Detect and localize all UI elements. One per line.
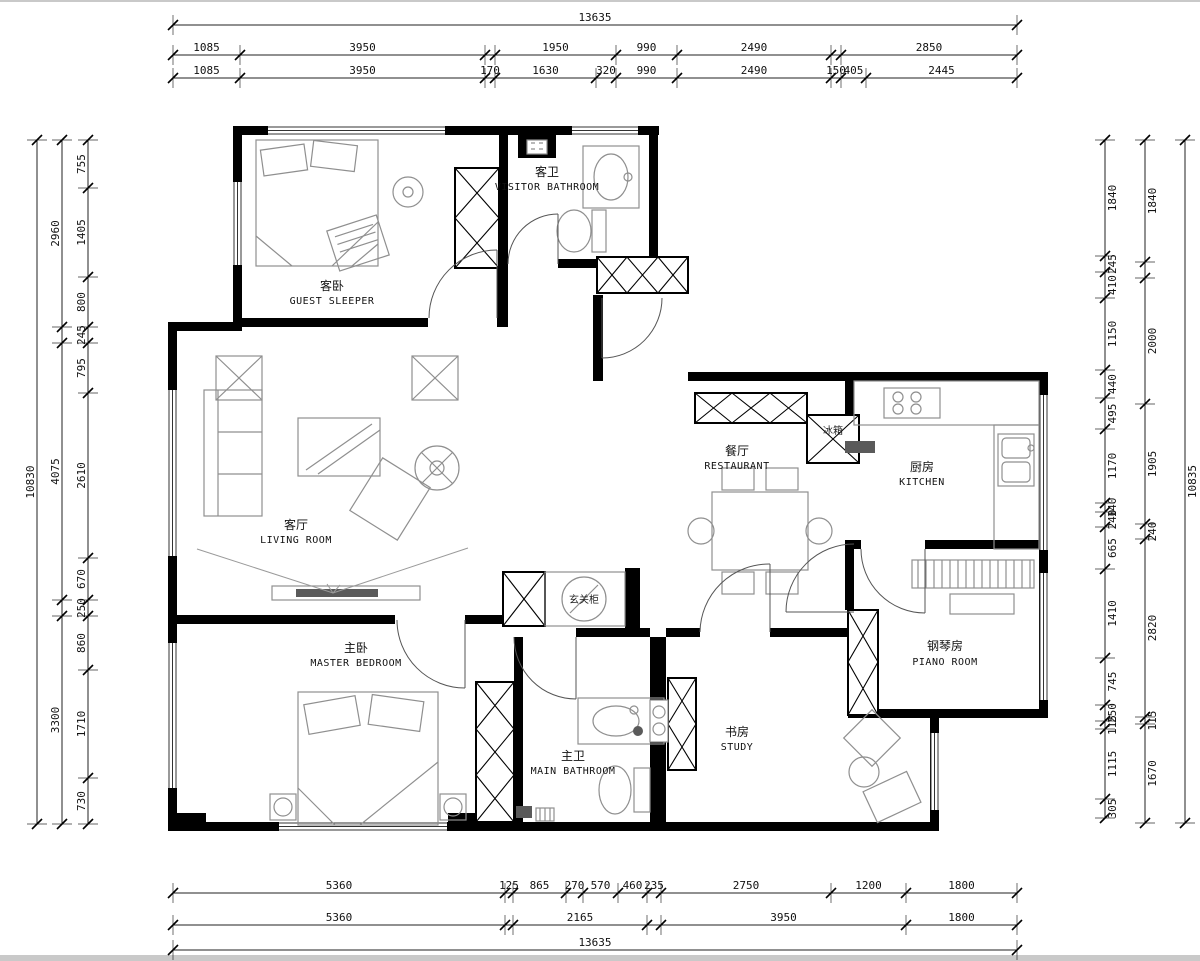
dim-label: 2610 [75, 462, 88, 489]
kitchen-entry-block [845, 441, 875, 453]
dim-label: 1085 [193, 41, 220, 54]
master-closet-icon [476, 682, 514, 822]
room-label-master-bedroom-en: MASTER BEDROOM [310, 658, 401, 669]
dim-bottom-inner: 5360125865270570460235275012001800 [168, 879, 1022, 903]
dim-label: 320 [596, 64, 616, 77]
room-label-living-room-zh: 客厅 [284, 517, 308, 532]
dim-label: 2850 [916, 41, 943, 54]
window-piano-right [1040, 573, 1048, 700]
room-label-study-en: STUDY [721, 742, 754, 753]
dim-label: 665 [1106, 538, 1119, 558]
room-label-main-bathroom-en: MAIN BATHROOM [531, 766, 616, 777]
floorplan-svg: 客卧 GUEST SLEEPER 客卫 VISITOR BATHROOM 客厅 … [0, 0, 1200, 961]
visitor-bath-sink-icon [583, 146, 639, 208]
room-label-kitchen-en: KITCHEN [899, 477, 945, 488]
dim-label: 1410 [1106, 600, 1119, 627]
dim-label: 1085 [193, 64, 220, 77]
window-living-left [168, 390, 177, 556]
kitchen-counter-icon [854, 381, 1039, 549]
dining-table-icon [688, 468, 832, 594]
room-label-living-room-en: LIVING ROOM [260, 535, 332, 546]
dim-label: 3300 [49, 707, 62, 734]
tv-cabinet-icon [272, 586, 420, 600]
floor-plan-page: 客卧 GUEST SLEEPER 客卫 VISITOR BATHROOM 客厅 … [0, 0, 1200, 961]
dim-label: 10835 [1186, 465, 1199, 498]
dim-label: 13635 [578, 11, 611, 24]
dim-label: 1800 [948, 911, 975, 924]
dim-label: 125 [499, 879, 519, 892]
chaise-icon [350, 458, 430, 540]
room-label-restaurant-zh: 餐厅 [725, 443, 749, 458]
dim-label: 460 [623, 879, 643, 892]
dim-right-mid: 18402000190524028201151670 [1135, 135, 1159, 828]
room-label-master-bedroom-zh: 主卧 [344, 641, 368, 655]
study-column-icon [668, 678, 696, 770]
dim-label: 2165 [567, 911, 594, 924]
dim-label: 1405 [75, 219, 88, 246]
main-bath-door [514, 637, 576, 699]
dim-label: 2445 [928, 64, 955, 77]
room-label-guest-sleeper-zh: 客卧 [320, 278, 344, 293]
dim-label: 245 [75, 325, 88, 345]
dim-label: 1170 [1106, 453, 1119, 480]
guest-lamp-icon [393, 177, 423, 207]
entry-door [602, 298, 662, 358]
dim-label: 495 [1106, 404, 1119, 424]
dim-label: 405 [844, 64, 864, 77]
dim-label: 3950 [349, 64, 376, 77]
dim-label: 410 [1106, 275, 1119, 295]
visitor-bath-toilet-icon [557, 210, 606, 252]
study-door [700, 564, 770, 632]
dim-label: 755 [75, 154, 88, 174]
dim-label: 240 [1146, 522, 1159, 542]
dim-label: 5360 [326, 911, 353, 924]
dining-cabinet-icon [695, 393, 807, 423]
dim-label: 240 [1106, 510, 1119, 530]
dim-label: 860 [75, 633, 88, 653]
window-guest-top [268, 126, 445, 135]
dim-label: 10830 [24, 465, 37, 498]
room-label-kitchen-zh: 厨房 [910, 459, 934, 474]
dim-label: 990 [637, 64, 657, 77]
dim-label: 250 [75, 598, 88, 618]
elevator-shaft-icon [597, 257, 688, 293]
dim-label: 235 [644, 879, 664, 892]
room-label-restaurant-en: RESTAURANT [704, 461, 769, 472]
dim-label: 245 [1106, 254, 1119, 274]
dim-label: 670 [75, 569, 88, 589]
sofa-icon [204, 390, 262, 516]
dim-label: 1905 [1146, 451, 1159, 478]
living-armchair-left-icon [216, 356, 262, 400]
dim-label: 1840 [1106, 185, 1119, 212]
bottom-edge-strip [0, 955, 1200, 961]
piano-column-icon [848, 610, 878, 715]
dim-left-outer: 10830 [24, 135, 47, 829]
fridge-icon [807, 415, 859, 463]
room-label-guest-sleeper-en: GUEST SLEEPER [290, 296, 375, 307]
dim-label: 170 [480, 64, 500, 77]
room-label-visitor-bathroom-en: VISITOR BATHROOM [495, 182, 599, 193]
dim-label: 305 [1106, 799, 1119, 819]
dim-label: 1800 [948, 879, 975, 892]
dim-label: 2750 [733, 879, 760, 892]
room-label-main-bathroom-zh: 主卫 [561, 749, 585, 763]
kitchen-sink-icon [998, 434, 1034, 486]
entry-cabinet-icon [503, 572, 545, 626]
window-master-left [168, 643, 177, 788]
dim-left-inner: 755140580024579526106702508601710730 [75, 135, 98, 829]
dim-label: 1670 [1146, 760, 1159, 787]
piano-icon [912, 560, 1034, 614]
bath-shaft-grill-icon [527, 140, 547, 154]
coffee-table-icon [298, 418, 380, 476]
dim-label: 3950 [770, 911, 797, 924]
dim-left-mid: 296040753300 [49, 135, 72, 829]
master-bedroom-door [397, 620, 465, 688]
room-label-piano-room-zh: 钢琴房 [927, 638, 963, 653]
kitchen-door [861, 549, 925, 613]
washer-icon [650, 700, 668, 742]
dim-label: 270 [565, 879, 585, 892]
dim-label: 1115 [1106, 751, 1119, 778]
dim-label: 570 [591, 879, 611, 892]
study-furniture-icon [844, 710, 921, 823]
dim-label: 3950 [349, 41, 376, 54]
piano-room-door [786, 544, 854, 612]
dim-label: 1950 [542, 41, 569, 54]
dim-label: 2000 [1146, 328, 1159, 355]
room-label-piano-room-en: PIANO ROOM [912, 657, 977, 668]
window-master-bottom [279, 822, 447, 831]
dim-label: 13635 [578, 936, 611, 949]
dim-label: 990 [637, 41, 657, 54]
window-kitchen-right [1040, 395, 1048, 550]
window-guest-left [233, 182, 242, 265]
dim-label: 115 [1106, 715, 1119, 735]
dim-label: 440 [1106, 374, 1119, 394]
decor-fan-icon [415, 446, 459, 490]
dim-label: 1840 [1146, 188, 1159, 215]
fridge-label: 冰箱 [823, 424, 843, 437]
dim-label: 730 [75, 791, 88, 811]
dim-label: 745 [1106, 672, 1119, 692]
dim-label: 1200 [855, 879, 882, 892]
dim-label: 115 [1146, 711, 1159, 731]
dim-bottom-mid: 5360216539501800 [168, 911, 1022, 935]
nightstand-left-icon [270, 794, 296, 820]
dim-top-mid: 10853950195099024902850 [168, 41, 1022, 65]
dim-label: 2820 [1146, 615, 1159, 642]
dim-label: 4075 [49, 458, 62, 485]
living-armchair-right-icon [412, 356, 458, 400]
dim-label: 1710 [75, 711, 88, 738]
dim-label: 2490 [741, 64, 768, 77]
top-edge-strip [0, 0, 1200, 2]
dim-label: 1630 [532, 64, 559, 77]
room-label-visitor-bathroom-zh: 客卫 [535, 164, 559, 179]
guest-bed-icon [256, 140, 378, 266]
dim-label: 795 [75, 358, 88, 378]
dim-label: 865 [530, 879, 550, 892]
visitor-bath-door [508, 214, 558, 264]
dim-label: 2960 [49, 220, 62, 247]
window-bath-top [572, 126, 638, 135]
dim-right-outer: 10835 [1175, 135, 1199, 828]
dim-label: 5360 [326, 879, 353, 892]
entry-cabinet-label: 玄关柜 [569, 593, 599, 606]
room-label-study-zh: 书房 [725, 724, 749, 739]
dim-label: 1150 [1106, 321, 1119, 348]
dim-label: 800 [75, 292, 88, 312]
window-study-right [931, 733, 939, 810]
stove-icon [884, 388, 940, 418]
dim-top-inner: 10853950170163032099024901504052445 [168, 64, 1022, 88]
dim-top-outer: 13635 [168, 11, 1022, 35]
dim-right-inner: 1840245410115044049511701402406651410745… [1095, 135, 1119, 823]
dim-label: 2490 [741, 41, 768, 54]
master-bed-icon [298, 692, 438, 825]
